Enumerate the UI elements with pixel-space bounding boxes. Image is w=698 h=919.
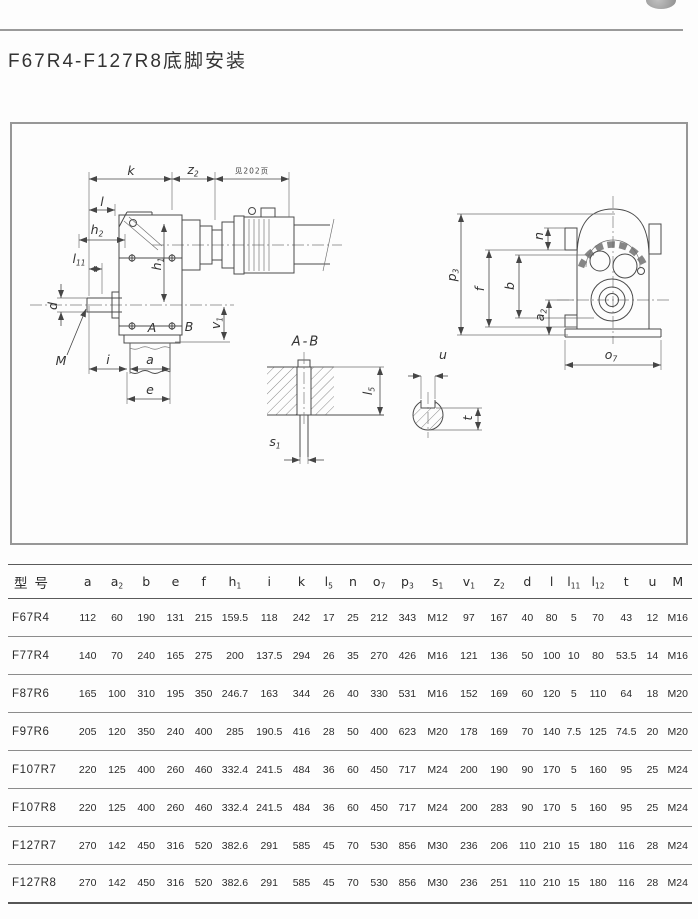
value-cell: 70	[341, 827, 365, 865]
dim-label-n: n	[533, 232, 546, 240]
value-cell: 531	[393, 675, 421, 713]
value-cell: 585	[286, 865, 316, 903]
value-cell: 14	[641, 637, 663, 675]
dim-label-l11: l11	[72, 253, 85, 266]
value-cell: 215	[190, 599, 218, 637]
value-cell: 200	[454, 789, 484, 827]
value-cell: 140	[540, 713, 562, 751]
value-cell: M20	[664, 713, 692, 751]
value-cell: 190	[484, 751, 514, 789]
value-cell: 95	[611, 751, 641, 789]
value-cell: M30	[421, 827, 453, 865]
value-cell: 856	[393, 827, 421, 865]
value-cell: 40	[514, 599, 540, 637]
value-cell: 121	[454, 637, 484, 675]
value-cell: 180	[585, 827, 611, 865]
value-cell: 200	[454, 751, 484, 789]
value-cell: 283	[484, 789, 514, 827]
column-header-f: f	[190, 565, 218, 599]
value-cell: 100	[103, 675, 131, 713]
value-cell: 270	[365, 637, 393, 675]
section-mark-B: B	[185, 321, 194, 334]
value-cell: 50	[514, 637, 540, 675]
value-cell: 260	[161, 751, 189, 789]
value-cell: 131	[161, 599, 189, 637]
value-cell: 170	[540, 751, 562, 789]
value-cell: 450	[365, 751, 393, 789]
dim-label-e: e	[146, 384, 154, 397]
top-rule	[0, 29, 683, 31]
value-cell: 152	[454, 675, 484, 713]
model-cell: F107R8	[8, 789, 73, 827]
page-title: F67R4-F127R8底脚安装	[8, 46, 247, 73]
value-cell: 80	[540, 599, 562, 637]
value-cell: 316	[161, 827, 189, 865]
dimension-table-wrapper: 型号aa2befh1ikl5no7p3s1v1z2dll11l12tuMF67R…	[8, 564, 692, 904]
value-cell: 236	[454, 827, 484, 865]
value-cell: 50	[341, 713, 365, 751]
dim-label-f: f	[474, 287, 487, 291]
value-cell: 316	[161, 865, 189, 903]
value-cell: 165	[73, 675, 103, 713]
column-header-e: e	[161, 565, 189, 599]
value-cell: 344	[286, 675, 316, 713]
dim-label-h2: h2	[91, 224, 104, 237]
table-row-F127R8: F127R8270142450316520382.629158545705308…	[8, 865, 692, 903]
table-row-F107R7: F107R7220125400260460332.4241.5484366045…	[8, 751, 692, 789]
value-cell: M20	[664, 675, 692, 713]
value-cell: 70	[514, 713, 540, 751]
model-cell: F77R4	[8, 637, 73, 675]
value-cell: 10	[563, 637, 585, 675]
value-cell: M24	[421, 789, 453, 827]
value-cell: 270	[73, 865, 103, 903]
value-cell: 116	[611, 827, 641, 865]
value-cell: 426	[393, 637, 421, 675]
value-cell: 53.5	[611, 637, 641, 675]
model-cell: F87R6	[8, 675, 73, 713]
value-cell: 717	[393, 789, 421, 827]
value-cell: 25	[641, 751, 663, 789]
column-header-v1: v1	[454, 565, 484, 599]
section-title: A-B	[292, 336, 321, 349]
value-cell: M30	[421, 865, 453, 903]
value-cell: M12	[421, 599, 453, 637]
column-header-l: l	[540, 565, 562, 599]
value-cell: 310	[131, 675, 161, 713]
value-cell: 25	[341, 599, 365, 637]
model-cell: F67R4	[8, 599, 73, 637]
value-cell: 241.5	[252, 789, 286, 827]
value-cell: 585	[286, 827, 316, 865]
value-cell: 236	[454, 865, 484, 903]
dim-label-a2: a2	[534, 309, 547, 321]
value-cell: 112	[73, 599, 103, 637]
value-cell: M20	[421, 713, 453, 751]
value-cell: 400	[131, 789, 161, 827]
value-cell: 142	[103, 827, 131, 865]
value-cell: M16	[664, 637, 692, 675]
value-cell: 206	[484, 827, 514, 865]
dim-label-d: d	[47, 302, 60, 310]
value-cell: 136	[484, 637, 514, 675]
value-cell: 195	[161, 675, 189, 713]
value-cell: 460	[190, 789, 218, 827]
dim-label-t: t	[462, 416, 475, 421]
dim-label-b: b	[504, 282, 517, 290]
value-cell: 200	[218, 637, 252, 675]
value-cell: 25	[641, 789, 663, 827]
value-cell: 159.5	[218, 599, 252, 637]
value-cell: 460	[190, 751, 218, 789]
model-cell: F107R7	[8, 751, 73, 789]
column-header-u: u	[641, 565, 663, 599]
value-cell: 450	[131, 865, 161, 903]
dim-label-z2: z2	[187, 164, 198, 177]
value-cell: 20	[641, 713, 663, 751]
value-cell: 332.4	[218, 751, 252, 789]
technical-drawing: k z2 见202页 l h2 l11 d M i a e h1 A B v1 …	[10, 122, 688, 545]
column-header-s1: s1	[421, 565, 453, 599]
value-cell: 400	[365, 713, 393, 751]
value-cell: 343	[393, 599, 421, 637]
value-cell: 530	[365, 865, 393, 903]
value-cell: 140	[73, 637, 103, 675]
value-cell: 28	[641, 827, 663, 865]
table-row-F107R8: F107R8220125400260460332.4241.5484366045…	[8, 789, 692, 827]
value-cell: 856	[393, 865, 421, 903]
value-cell: M24	[421, 751, 453, 789]
value-cell: 70	[585, 599, 611, 637]
value-cell: 270	[73, 827, 103, 865]
value-cell: 125	[585, 713, 611, 751]
value-cell: 400	[190, 713, 218, 751]
value-cell: 7.5	[563, 713, 585, 751]
column-header-l12: l12	[585, 565, 611, 599]
value-cell: M16	[421, 637, 453, 675]
value-cell: 212	[365, 599, 393, 637]
value-cell: 275	[190, 637, 218, 675]
value-cell: 90	[514, 789, 540, 827]
value-cell: 120	[103, 713, 131, 751]
value-cell: 160	[585, 751, 611, 789]
value-cell: 17	[317, 599, 341, 637]
value-cell: 137.5	[252, 637, 286, 675]
value-cell: 246.7	[218, 675, 252, 713]
value-cell: 15	[563, 827, 585, 865]
value-cell: 240	[131, 637, 161, 675]
value-cell: 520	[190, 827, 218, 865]
value-cell: 110	[585, 675, 611, 713]
value-cell: 484	[286, 789, 316, 827]
value-cell: 60	[514, 675, 540, 713]
value-cell: 210	[540, 865, 562, 903]
value-cell: 220	[73, 751, 103, 789]
value-cell: 26	[317, 675, 341, 713]
value-cell: 416	[286, 713, 316, 751]
dim-label-note: 见202页	[235, 167, 269, 175]
value-cell: 40	[341, 675, 365, 713]
value-cell: M24	[664, 827, 692, 865]
value-cell: 35	[341, 637, 365, 675]
value-cell: 142	[103, 865, 131, 903]
column-header-a: a	[73, 565, 103, 599]
value-cell: 100	[540, 637, 562, 675]
model-cell: F97R6	[8, 713, 73, 751]
value-cell: 291	[252, 865, 286, 903]
value-cell: 95	[611, 789, 641, 827]
dim-label-M: M	[56, 355, 67, 368]
dim-label-k: k	[127, 165, 134, 178]
value-cell: 205	[73, 713, 103, 751]
column-header-p3: p3	[393, 565, 421, 599]
value-cell: 332.4	[218, 789, 252, 827]
value-cell: 382.6	[218, 865, 252, 903]
value-cell: 350	[131, 713, 161, 751]
value-cell: 36	[317, 789, 341, 827]
value-cell: 484	[286, 751, 316, 789]
value-cell: 116	[611, 865, 641, 903]
value-cell: 125	[103, 789, 131, 827]
table-row-F67R4: F67R411260190131215159.51182421725212343…	[8, 599, 692, 637]
value-cell: 80	[585, 637, 611, 675]
value-cell: 60	[341, 789, 365, 827]
value-cell: 260	[161, 789, 189, 827]
value-cell: 45	[317, 827, 341, 865]
value-cell: 450	[365, 789, 393, 827]
value-cell: 118	[252, 599, 286, 637]
value-cell: 5	[563, 599, 585, 637]
model-cell: F127R8	[8, 865, 73, 903]
value-cell: 178	[454, 713, 484, 751]
value-cell: 294	[286, 637, 316, 675]
table-row-F87R6: F87R6165100310195350246.7163344264033053…	[8, 675, 692, 713]
value-cell: 160	[585, 789, 611, 827]
dim-label-h1: h1	[151, 258, 164, 271]
value-cell: 5	[563, 675, 585, 713]
value-cell: 180	[585, 865, 611, 903]
value-cell: 169	[484, 675, 514, 713]
value-cell: 530	[365, 827, 393, 865]
value-cell: M24	[664, 789, 692, 827]
value-cell: 5	[563, 751, 585, 789]
value-cell: 241.5	[252, 751, 286, 789]
value-cell: 285	[218, 713, 252, 751]
dim-label-s1: s1	[269, 436, 280, 449]
dim-label-a: a	[146, 354, 154, 367]
dimension-table: 型号aa2befh1ikl5no7p3s1v1z2dll11l12tuMF67R…	[8, 564, 692, 904]
value-cell: 520	[190, 865, 218, 903]
value-cell: 382.6	[218, 827, 252, 865]
table-row-F77R4: F77R414070240165275200137.52942635270426…	[8, 637, 692, 675]
value-cell: 60	[103, 599, 131, 637]
dim-label-l5: l5	[362, 387, 375, 395]
value-cell: 717	[393, 751, 421, 789]
value-cell: 623	[393, 713, 421, 751]
value-cell: 45	[317, 865, 341, 903]
column-header-l11: l11	[563, 565, 585, 599]
value-cell: 251	[484, 865, 514, 903]
column-header-h1: h1	[218, 565, 252, 599]
value-cell: 110	[514, 827, 540, 865]
value-cell: 190.5	[252, 713, 286, 751]
logo-mark	[646, 0, 676, 9]
value-cell: M16	[421, 675, 453, 713]
column-header-b: b	[131, 565, 161, 599]
value-cell: 12	[641, 599, 663, 637]
value-cell: 90	[514, 751, 540, 789]
column-header-i: i	[252, 565, 286, 599]
value-cell: 350	[190, 675, 218, 713]
value-cell: 330	[365, 675, 393, 713]
value-cell: 64	[611, 675, 641, 713]
value-cell: 190	[131, 599, 161, 637]
value-cell: 74.5	[611, 713, 641, 751]
column-header-d: d	[514, 565, 540, 599]
value-cell: M24	[664, 751, 692, 789]
value-cell: 110	[514, 865, 540, 903]
value-cell: 70	[341, 865, 365, 903]
value-cell: 163	[252, 675, 286, 713]
dim-label-l: l	[100, 196, 103, 209]
column-header-model: 型号	[8, 565, 73, 599]
value-cell: 36	[317, 751, 341, 789]
column-header-a2: a2	[103, 565, 131, 599]
table-row-F127R7: F127R7270142450316520382.629158545705308…	[8, 827, 692, 865]
value-cell: 220	[73, 789, 103, 827]
section-mark-A: A	[148, 322, 157, 335]
table-header-row: 型号aa2befh1ikl5no7p3s1v1z2dll11l12tuM	[8, 565, 692, 599]
value-cell: M16	[664, 599, 692, 637]
value-cell: 5	[563, 789, 585, 827]
value-cell: 15	[563, 865, 585, 903]
value-cell: 70	[103, 637, 131, 675]
column-header-l5: l5	[317, 565, 341, 599]
value-cell: 97	[454, 599, 484, 637]
value-cell: 125	[103, 751, 131, 789]
table-row-F97R6: F97R6205120350240400285190.5416285040062…	[8, 713, 692, 751]
dim-label-o7: o7	[605, 349, 617, 362]
dim-label-p3: p3	[446, 269, 459, 282]
drawing-canvas	[12, 124, 684, 541]
column-header-k: k	[286, 565, 316, 599]
value-cell: 60	[341, 751, 365, 789]
column-header-o7: o7	[365, 565, 393, 599]
value-cell: 18	[641, 675, 663, 713]
dim-label-v1: v1	[210, 317, 223, 329]
value-cell: 242	[286, 599, 316, 637]
model-cell: F127R7	[8, 827, 73, 865]
column-header-z2: z2	[484, 565, 514, 599]
column-header-n: n	[341, 565, 365, 599]
value-cell: M24	[664, 865, 692, 903]
value-cell: 240	[161, 713, 189, 751]
value-cell: 120	[540, 675, 562, 713]
value-cell: 169	[484, 713, 514, 751]
value-cell: 165	[161, 637, 189, 675]
dim-label-i: i	[106, 354, 109, 367]
value-cell: 28	[317, 713, 341, 751]
value-cell: 26	[317, 637, 341, 675]
catalog-page: F67R4-F127R8底脚安装	[0, 0, 698, 919]
value-cell: 210	[540, 827, 562, 865]
value-cell: 291	[252, 827, 286, 865]
value-cell: 450	[131, 827, 161, 865]
value-cell: 170	[540, 789, 562, 827]
value-cell: 43	[611, 599, 641, 637]
value-cell: 167	[484, 599, 514, 637]
value-cell: 28	[641, 865, 663, 903]
column-header-t: t	[611, 565, 641, 599]
value-cell: 400	[131, 751, 161, 789]
dim-label-u: u	[439, 349, 447, 362]
column-header-M: M	[664, 565, 692, 599]
